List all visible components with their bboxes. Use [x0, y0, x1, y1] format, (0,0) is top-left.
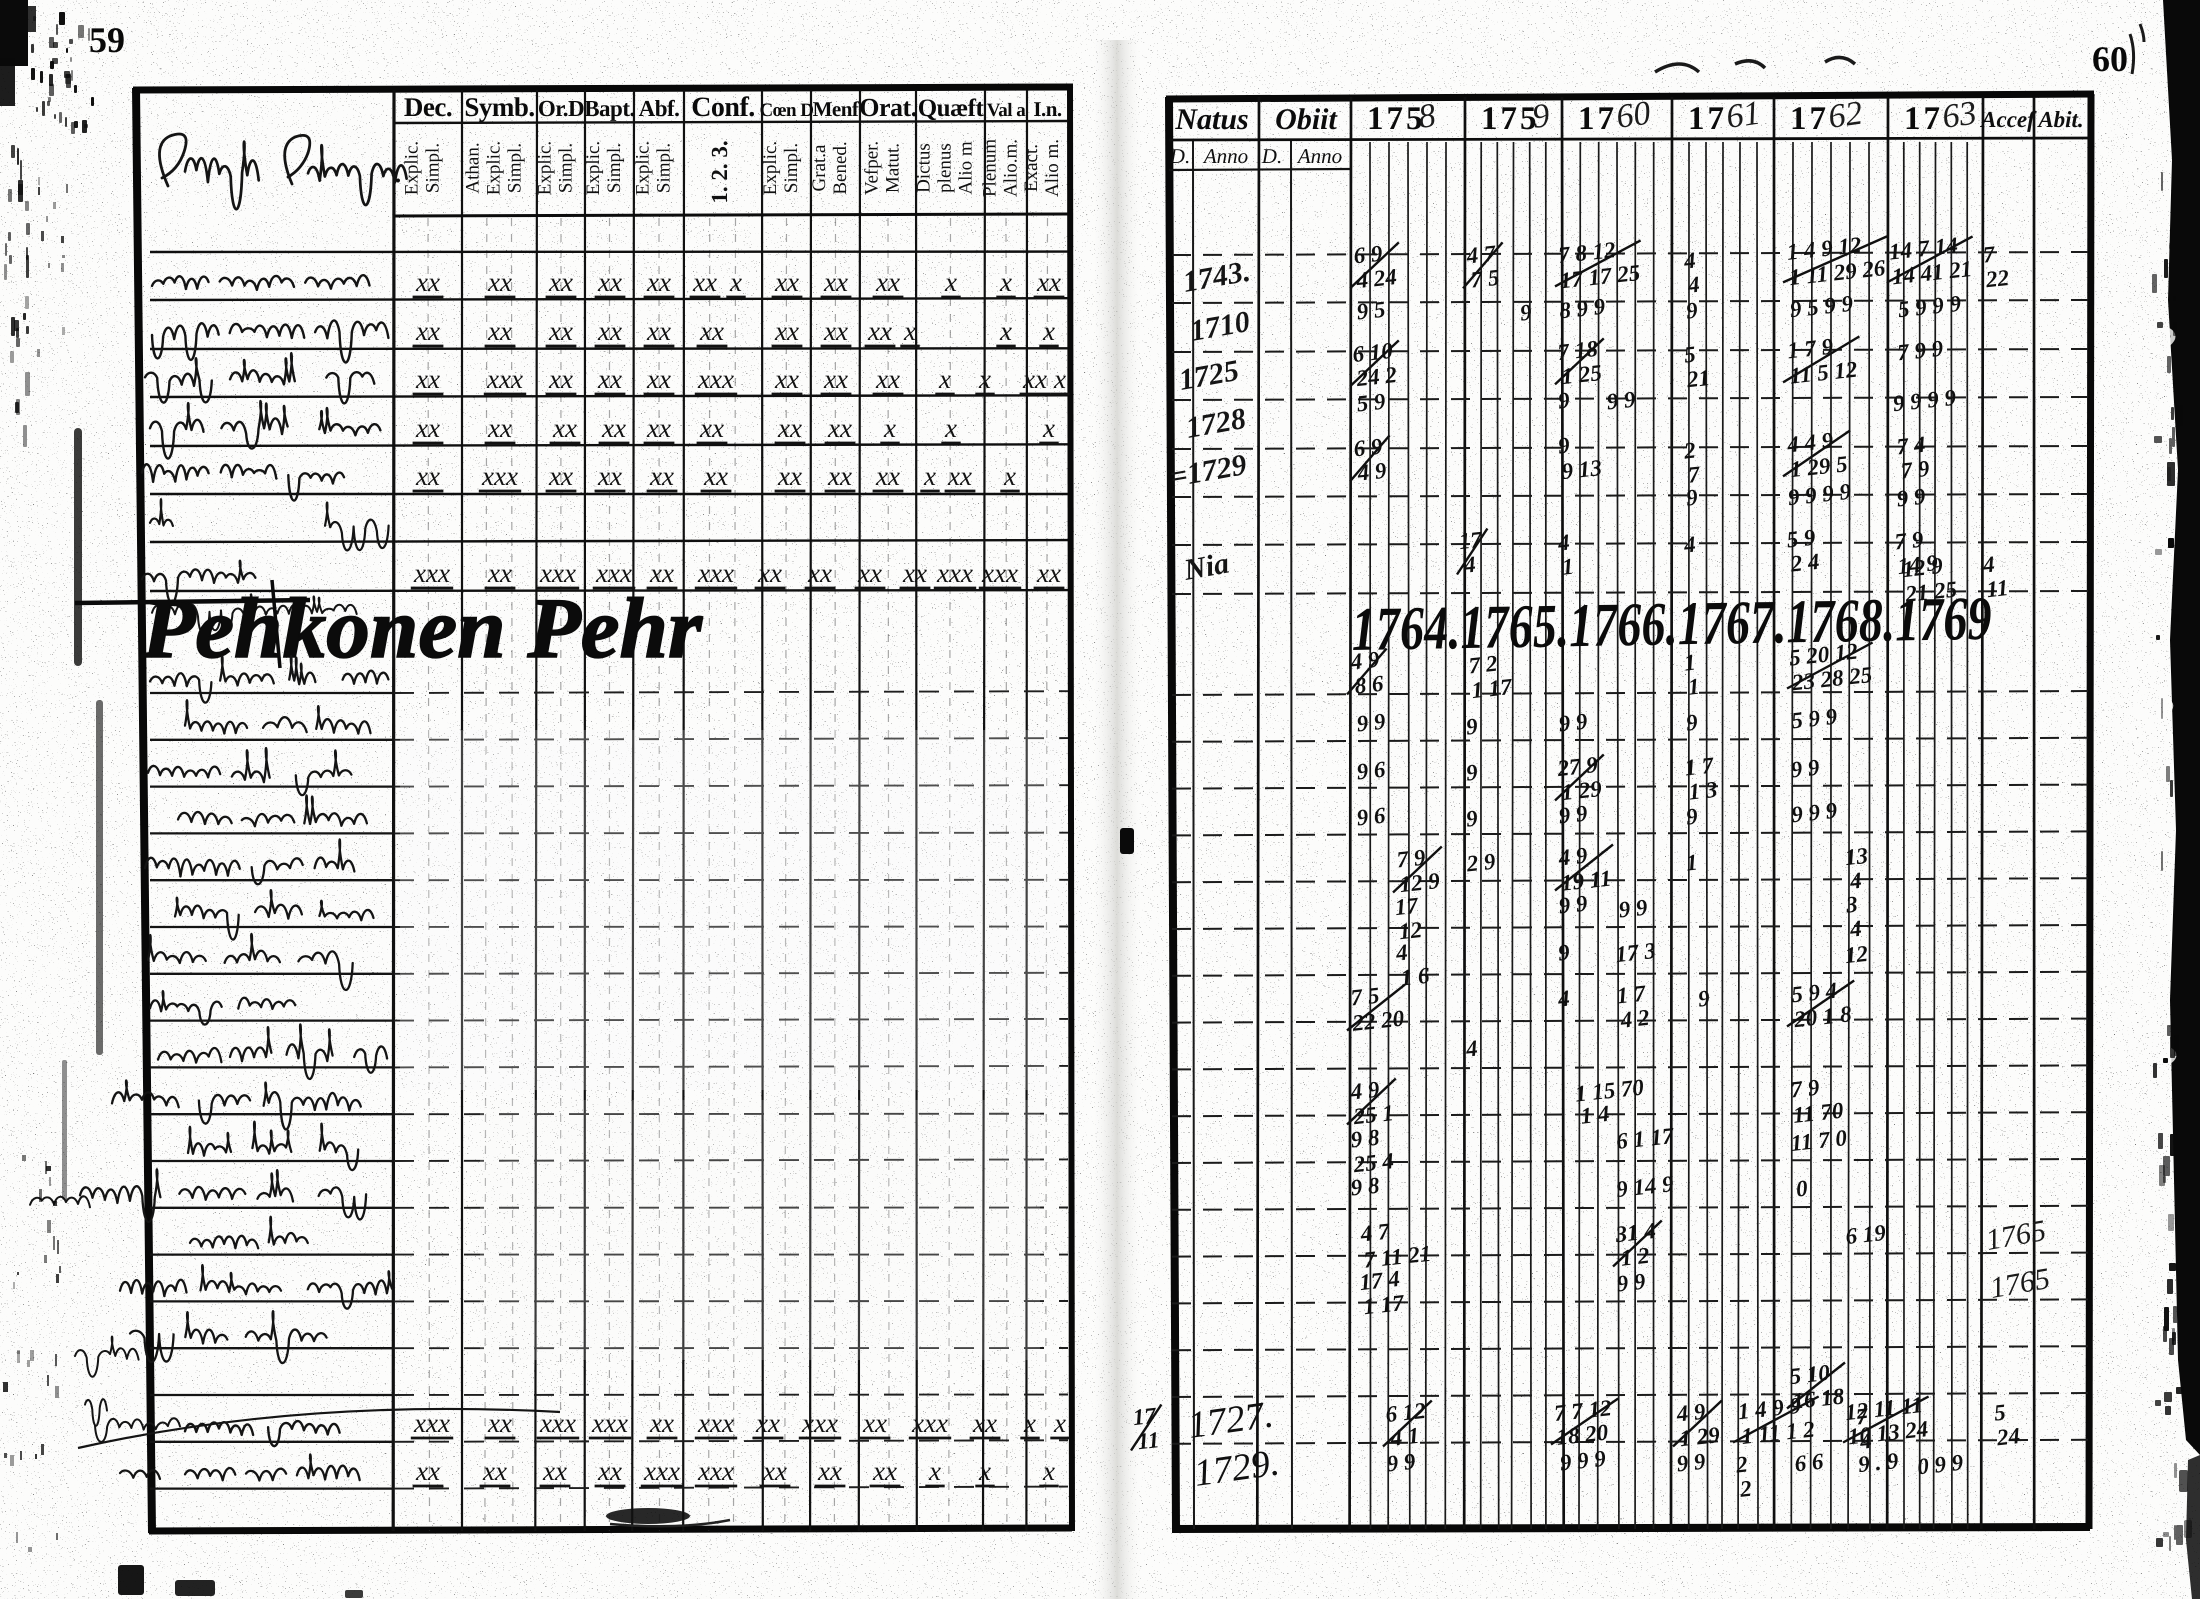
svg-text:21: 21 [1685, 365, 1711, 392]
svg-text:Val a: Val a [987, 100, 1027, 121]
svg-text:11: 11 [1985, 575, 2009, 602]
svg-text:Alio m.: Alio m. [1042, 139, 1063, 197]
svg-text:Athan.: Athan. [463, 142, 484, 193]
svg-text:0 9 9: 0 9 9 [1916, 1450, 1965, 1480]
svg-text:xx: xx [487, 316, 512, 346]
svg-text:9 9: 9 9 [1615, 1269, 1647, 1297]
svg-text:9 9: 9 9 [1385, 1449, 1417, 1477]
svg-text:7 9: 7 9 [1395, 845, 1427, 873]
svg-text:4: 4 [1556, 530, 1571, 556]
svg-text:x: x [978, 1456, 991, 1486]
svg-text:7 9: 7 9 [1789, 1075, 1821, 1103]
svg-text:2: 2 [1738, 1476, 1753, 1502]
svg-text:Accef: Accef [1979, 107, 2037, 132]
svg-text:9 6: 9 6 [1355, 803, 1387, 831]
svg-text:xxx: xxx [591, 1408, 628, 1438]
svg-text:xx: xx [774, 364, 799, 394]
svg-text:xx: xx [875, 461, 900, 491]
svg-text:6 19: 6 19 [1844, 1220, 1887, 1249]
svg-text:4 2: 4 2 [1618, 1005, 1650, 1033]
svg-text:xxx: xxx [539, 1408, 576, 1438]
svg-text:xx: xx [692, 267, 717, 297]
svg-text:9 9: 9 9 [1789, 755, 1821, 783]
svg-text:xx: xx [649, 1408, 674, 1438]
svg-text:Exact.: Exact. [1021, 144, 1042, 192]
svg-text:xx: xx [823, 316, 848, 346]
svg-text:7 9 9: 7 9 9 [1896, 336, 1945, 366]
svg-text:7 5: 7 5 [1469, 265, 1500, 293]
svg-text:xxx: xxx [697, 558, 734, 588]
svg-text:xx: xx [947, 461, 972, 491]
svg-text:62: 62 [1826, 95, 1865, 136]
svg-text:xx: xx [807, 558, 832, 588]
svg-text:xx: xx [646, 316, 671, 346]
svg-text:Bened.: Bened. [830, 141, 851, 194]
svg-text:9 9: 9 9 [1557, 801, 1589, 829]
svg-text:3: 3 [1844, 892, 1859, 918]
svg-text:x: x [944, 413, 957, 443]
svg-text:xx: xx [757, 558, 782, 588]
svg-text:xxx: xxx [481, 461, 518, 491]
svg-text:9 9: 9 9 [1355, 709, 1387, 737]
svg-text:17: 17 [1688, 101, 1727, 137]
svg-text:x: x [1003, 461, 1016, 491]
svg-text:xxx: xxx [413, 1408, 450, 1438]
svg-text:xx: xx [823, 267, 848, 297]
svg-text:Natus: Natus [1174, 103, 1248, 136]
svg-text:xx: xx [867, 316, 892, 346]
svg-text:9 9 9: 9 9 9 [1559, 1446, 1608, 1476]
svg-text:x: x [1042, 316, 1055, 346]
svg-text:xx: xx [774, 316, 799, 346]
svg-text:4: 4 [1848, 916, 1863, 942]
svg-text:xx: xx [601, 413, 626, 443]
svg-text:17: 17 [1578, 101, 1617, 137]
svg-text:xx: xx [972, 1408, 997, 1438]
svg-text:Orat.: Orat. [859, 93, 916, 122]
svg-text:x: x [903, 316, 916, 346]
svg-text:xx: xx [875, 267, 900, 297]
svg-text:xx: xx [646, 267, 671, 297]
svg-text:4: 4 [1464, 1036, 1479, 1062]
svg-text:1. 2. 3.: 1. 2. 3. [707, 140, 732, 203]
svg-text:D.: D. [1169, 144, 1190, 168]
svg-text:x: x [928, 1456, 941, 1486]
svg-text:Abit.: Abit. [2036, 107, 2083, 132]
svg-text:4: 4 [1848, 868, 1863, 894]
svg-text:1 17: 1 17 [1362, 1290, 1406, 1319]
svg-text:xxx: xxx [697, 364, 734, 394]
svg-text:17 3: 17 3 [1614, 938, 1657, 967]
svg-text:xx: xx [415, 267, 440, 297]
svg-text:xx: xx [699, 413, 724, 443]
svg-text:Cœn D: Cœn D [760, 100, 814, 121]
svg-text:4: 4 [1394, 940, 1409, 966]
svg-text:Explic.: Explic. [760, 141, 781, 195]
svg-text:xx: xx [415, 1456, 440, 1486]
svg-text:xx: xx [827, 461, 852, 491]
svg-text:1 17: 1 17 [1470, 674, 1514, 703]
svg-text:xx: xx [487, 413, 512, 443]
svg-text:Obiit: Obiit [1275, 103, 1338, 136]
svg-text:Simpl.: Simpl. [654, 143, 675, 193]
svg-text:5 9 9: 5 9 9 [1790, 704, 1839, 734]
svg-text:17: 17 [1790, 101, 1829, 137]
svg-text:9 9: 9 9 [1675, 1449, 1707, 1477]
svg-text:x: x [923, 461, 936, 491]
svg-text:xxx: xxx [697, 1408, 734, 1438]
svg-text:x: x [1042, 1456, 1055, 1486]
svg-text:8 6: 8 6 [1353, 671, 1385, 699]
svg-text:xx: xx [755, 1408, 780, 1438]
svg-text:xxx: xxx [697, 1456, 734, 1486]
svg-text:9 8: 9 8 [1349, 1173, 1381, 1201]
svg-text:Symb.: Symb. [464, 92, 534, 122]
svg-text:xx: xx [649, 461, 674, 491]
svg-text:xx: xx [548, 364, 573, 394]
svg-text:17: 17 [1394, 893, 1421, 920]
svg-text:5 9: 5 9 [1785, 525, 1817, 553]
svg-text:xx: xx [597, 316, 622, 346]
svg-text:xx: xx [699, 316, 724, 346]
svg-text:xx: xx [902, 558, 927, 588]
svg-text:xx: xx [415, 364, 440, 394]
svg-text:1764.1765.1766.1767.1768.1769: 1764.1765.1766.1767.1768.1769 [1351, 585, 1992, 664]
svg-text:7 4: 7 4 [1895, 432, 1926, 460]
svg-text:x: x [999, 267, 1012, 297]
svg-text:xx: xx [597, 1456, 622, 1486]
svg-text:Bapt.: Bapt. [584, 96, 635, 121]
svg-text:7 9: 7 9 [1899, 456, 1931, 484]
svg-text:Explic.: Explic. [633, 141, 654, 195]
svg-text:60: 60 [2092, 39, 2128, 79]
svg-text:4: 4 [1682, 248, 1697, 274]
svg-text:9 9: 9 9 [1557, 891, 1589, 919]
svg-text:Vefper.: Vefper. [862, 141, 883, 195]
svg-text:4: 4 [1981, 552, 1996, 578]
svg-text:Anno: Anno [1296, 144, 1342, 168]
svg-text:xx: xx [762, 1456, 787, 1486]
svg-text:Or.D: Or.D [538, 96, 584, 121]
svg-text:x: x [999, 316, 1012, 346]
svg-text:Menf: Menf [813, 97, 860, 121]
svg-text:13: 13 [1844, 843, 1869, 870]
svg-text:xx: xx [552, 413, 577, 443]
svg-text:4: 4 [1686, 272, 1701, 298]
svg-text:2: 2 [1734, 1452, 1749, 1478]
svg-text:xx: xx [862, 1408, 887, 1438]
svg-text:x: x [883, 413, 896, 443]
svg-text:8 9 9: 8 9 9 [1558, 294, 1607, 324]
svg-text:9 9: 9 9 [1617, 895, 1649, 923]
svg-text:plenus: plenus [935, 143, 956, 193]
svg-text:xx: xx [597, 364, 622, 394]
svg-text:Matut.: Matut. [883, 143, 904, 193]
svg-text:9 . 9: 9 . 9 [1857, 1448, 1900, 1477]
svg-text:xx: xx [774, 267, 799, 297]
svg-text:9 9: 9 9 [1605, 387, 1637, 415]
svg-text:xx: xx [827, 413, 852, 443]
svg-text:xxx: xxx [911, 1408, 948, 1438]
svg-text:xx: xx [1036, 558, 1061, 588]
svg-text:Grat.a: Grat.a [809, 144, 830, 192]
svg-text:x: x [944, 267, 957, 297]
svg-text:xx: xx [823, 364, 848, 394]
svg-text:1 7: 1 7 [1615, 980, 1648, 1008]
svg-text:4 9: 4 9 [1355, 458, 1388, 486]
svg-text:xx: xx [872, 1456, 897, 1486]
svg-text:17: 17 [1904, 101, 1943, 137]
svg-text:2 9: 2 9 [1464, 849, 1497, 877]
svg-text:xx: xx [1022, 364, 1047, 394]
svg-text:.: . [394, 153, 403, 190]
svg-text:xx: xx [857, 558, 882, 588]
svg-text:x: x [1053, 364, 1066, 394]
svg-text:9 13: 9 13 [1560, 455, 1603, 484]
svg-text:9 6: 9 6 [1355, 757, 1387, 785]
svg-text:9 9: 9 9 [1557, 709, 1589, 737]
svg-text:xxx: xxx [486, 364, 523, 394]
svg-text:Plenum: Plenum [980, 139, 1001, 197]
svg-text:Pehkonen Pehr: Pehkonen Pehr [141, 580, 704, 676]
svg-text:Conf.: Conf. [691, 92, 755, 123]
svg-text:xx: xx [415, 461, 440, 491]
svg-text:xx: xx [415, 413, 440, 443]
svg-text:4 9: 4 9 [1674, 1399, 1707, 1427]
svg-text:4 9: 4 9 [1348, 1077, 1381, 1105]
svg-text:1 4: 1 4 [1579, 1101, 1610, 1129]
svg-text:4: 4 [1556, 986, 1571, 1012]
svg-text:11: 11 [1136, 1427, 1160, 1454]
svg-text:22: 22 [1984, 265, 2010, 292]
svg-text:x: x [1042, 413, 1055, 443]
svg-text:Simpl.: Simpl. [505, 143, 526, 193]
svg-text:6 6: 6 6 [1793, 1449, 1825, 1477]
svg-text:xx: xx [777, 461, 802, 491]
svg-text:x: x [1053, 1408, 1066, 1438]
svg-text:1 3: 1 3 [1687, 777, 1718, 805]
svg-text:x: x [938, 364, 951, 394]
svg-text:Abf.: Abf. [639, 96, 680, 121]
svg-text:Dec.: Dec. [404, 92, 452, 122]
svg-text:Simpl.: Simpl. [604, 143, 625, 193]
svg-text:xx: xx [548, 316, 573, 346]
svg-text:2 4: 2 4 [1788, 549, 1820, 577]
svg-text:x: x [1023, 1408, 1036, 1438]
svg-text:xx: xx [1036, 267, 1061, 297]
svg-text:Alio m: Alio m [956, 141, 977, 195]
svg-text:xx: xx [542, 1456, 567, 1486]
svg-text:Simpl.: Simpl. [781, 143, 802, 193]
svg-text:Quæft: Quæft [918, 95, 985, 122]
svg-text:Simpl.: Simpl. [423, 143, 444, 193]
svg-text:Explic.: Explic. [535, 141, 556, 195]
svg-text:xx: xx [777, 413, 802, 443]
svg-text:Explic.: Explic. [583, 141, 604, 195]
svg-text:xx: xx [646, 364, 671, 394]
svg-text:11 70: 11 70 [1792, 1098, 1845, 1128]
svg-text:24: 24 [1995, 1423, 2021, 1450]
svg-text:61: 61 [1724, 95, 1763, 136]
svg-text:Explic.: Explic. [484, 141, 505, 195]
svg-text:Dictus: Dictus [914, 143, 935, 193]
svg-text:xx: xx [597, 267, 622, 297]
svg-text:xx: xx [415, 316, 440, 346]
svg-text:xx: xx [703, 461, 728, 491]
svg-text:xx: xx [548, 267, 573, 297]
svg-text:4 7: 4 7 [1358, 1218, 1392, 1246]
svg-text:9 8: 9 8 [1349, 1125, 1381, 1153]
svg-text:xx: xx [482, 1456, 507, 1486]
svg-text:D.: D. [1261, 144, 1282, 168]
svg-text:60: 60 [1614, 95, 1653, 136]
svg-text:Alio.m.: Alio.m. [1001, 139, 1022, 197]
svg-text:xxx: xxx [936, 558, 973, 588]
svg-text:xxx: xxx [981, 558, 1018, 588]
svg-text:63: 63 [1940, 95, 1979, 136]
svg-text:xx: xx [487, 267, 512, 297]
svg-text:xxx: xxx [801, 1408, 838, 1438]
svg-text:xx: xx [548, 461, 573, 491]
svg-text:xx: xx [646, 413, 671, 443]
svg-text:xx: xx [487, 1408, 512, 1438]
svg-text:59: 59 [89, 20, 125, 60]
svg-text:9 9: 9 9 [1895, 484, 1927, 512]
svg-text:Anno: Anno [1202, 144, 1248, 168]
svg-text:xx: xx [875, 364, 900, 394]
svg-text:xx: xx [817, 1456, 842, 1486]
svg-text:4: 4 [1682, 532, 1697, 558]
svg-text:9 5: 9 5 [1355, 297, 1386, 325]
svg-text:xxx: xxx [643, 1456, 680, 1486]
svg-text:xx: xx [597, 461, 622, 491]
svg-text:6 9: 6 9 [1352, 241, 1384, 269]
svg-text:12: 12 [1844, 941, 1869, 968]
svg-text:I.n.: I.n. [1033, 97, 1062, 121]
svg-text:x: x [729, 267, 742, 297]
svg-text:5 9: 5 9 [1355, 389, 1387, 417]
svg-text:9 9 9: 9 9 9 [1790, 798, 1839, 828]
svg-text:x: x [978, 364, 991, 394]
svg-text:Simpl.: Simpl. [556, 143, 577, 193]
svg-text:2: 2 [1682, 438, 1697, 464]
svg-text:7 9: 7 9 [1893, 527, 1925, 555]
svg-text:7 2: 7 2 [1467, 651, 1498, 679]
